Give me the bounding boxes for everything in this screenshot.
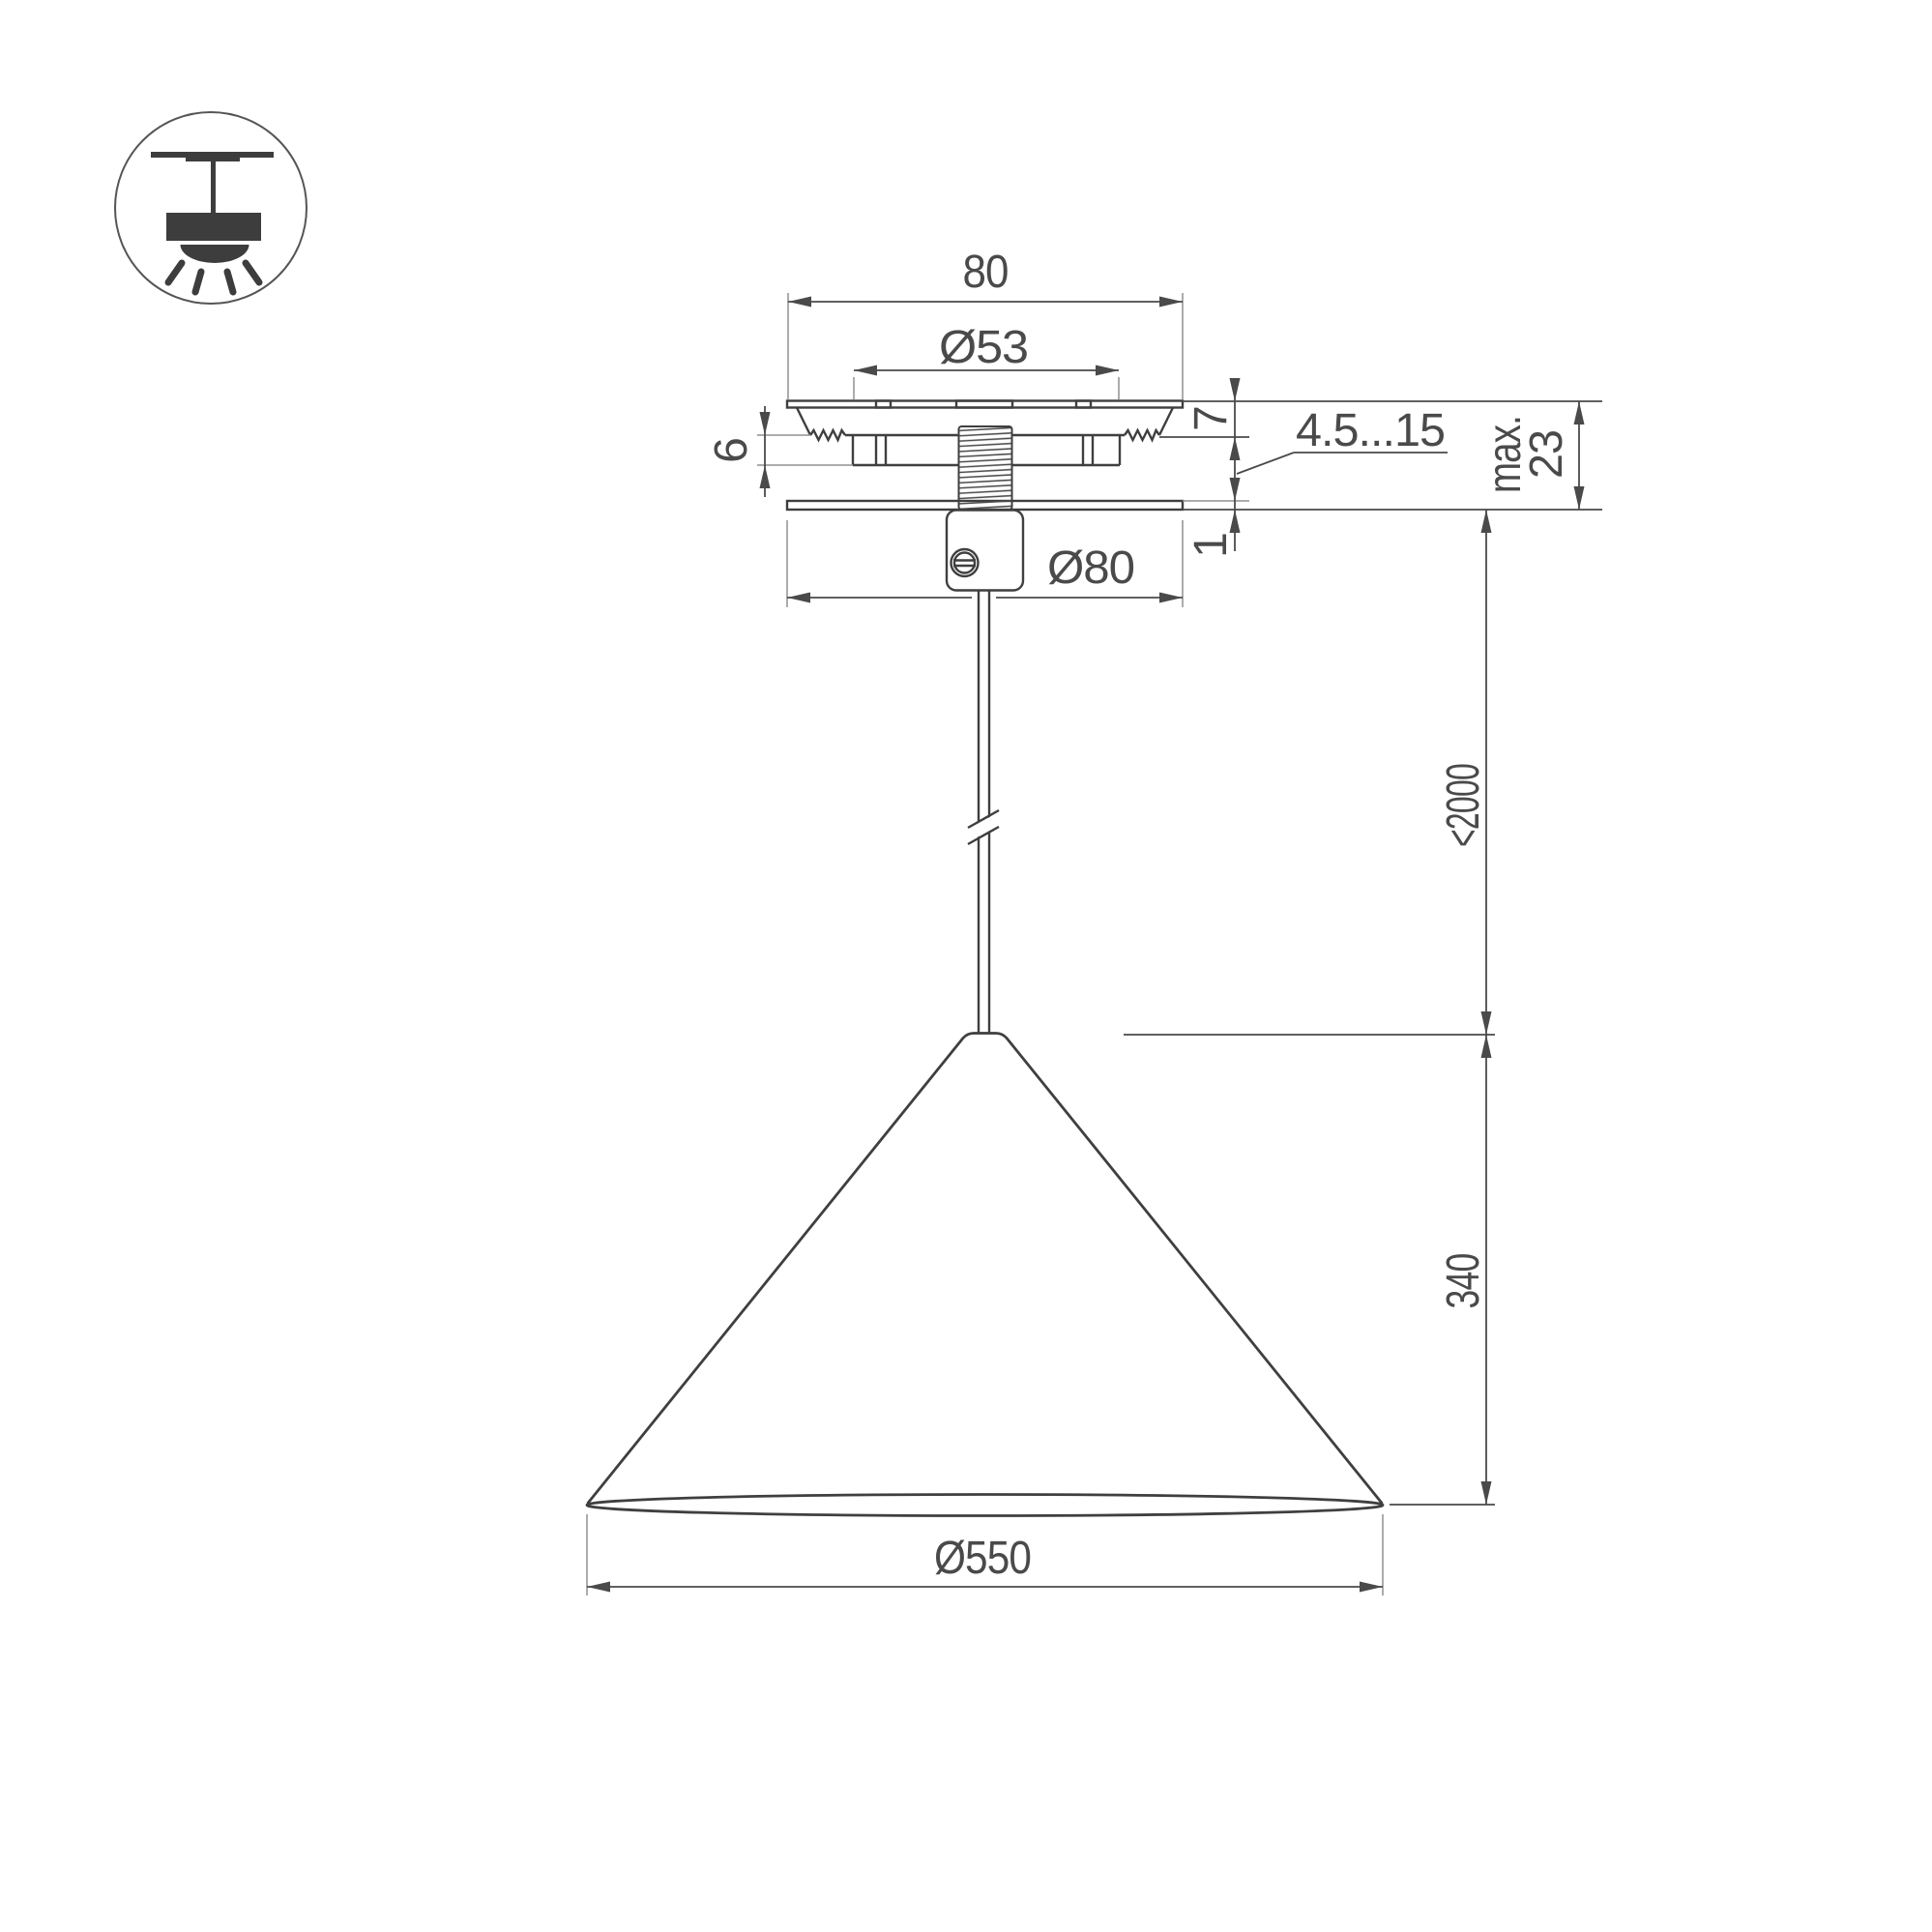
pendant-mount-icon	[115, 112, 307, 304]
cone-shade	[587, 1034, 1383, 1516]
icon-rod	[211, 159, 216, 215]
cable-break-gap	[966, 811, 1001, 843]
cone-body	[588, 1034, 1383, 1505]
dimension-labels: 80 Ø53 7 6 4.5...15 max. 23 1 Ø80 <2000 …	[706, 247, 1572, 1584]
icon-lamp-body	[166, 213, 261, 241]
icon-light-rays	[168, 263, 259, 292]
spring-right	[1125, 430, 1159, 440]
dim-canopy-width: 80	[963, 247, 1009, 298]
dimension-lines	[587, 302, 1579, 1587]
suspension-cable	[966, 590, 1001, 1034]
spring-left	[810, 430, 845, 440]
dim-max-value: 23	[1521, 430, 1572, 479]
dim-suspension-length: <2000	[1438, 764, 1489, 847]
plate-notch-right	[1076, 401, 1091, 408]
dim-flange-height: 7	[1186, 406, 1237, 431]
leader-grip	[1237, 453, 1294, 474]
dim-shade-diameter: Ø550	[934, 1533, 1031, 1584]
canopy-skirt-left	[797, 408, 810, 436]
canopy-skirt-right	[1159, 408, 1173, 436]
dim-plate-thickness: 1	[1186, 533, 1237, 558]
plate-notch-left	[876, 401, 891, 408]
plate-notch-center	[956, 401, 1012, 408]
extension-lines	[587, 293, 1602, 1595]
pendant-lamp-dimension-drawing: 80 Ø53 7 6 4.5...15 max. 23 1 Ø80 <2000 …	[0, 0, 1932, 1932]
dim-canopy-diameter: Ø80	[1047, 542, 1134, 594]
dim-shade-height: 340	[1438, 1254, 1489, 1309]
dim-hole-diameter: Ø53	[939, 322, 1028, 373]
cone-rim	[587, 1495, 1383, 1516]
threaded-stud	[959, 426, 1012, 510]
dimension-arrows	[587, 297, 1585, 1593]
dim-clamp-height: 6	[706, 438, 757, 463]
technical-drawing-page: 80 Ø53 7 6 4.5...15 max. 23 1 Ø80 <2000 …	[0, 0, 1932, 1932]
icon-lamp-dome	[181, 245, 249, 263]
dim-grip-range: 4.5...15	[1296, 405, 1445, 456]
